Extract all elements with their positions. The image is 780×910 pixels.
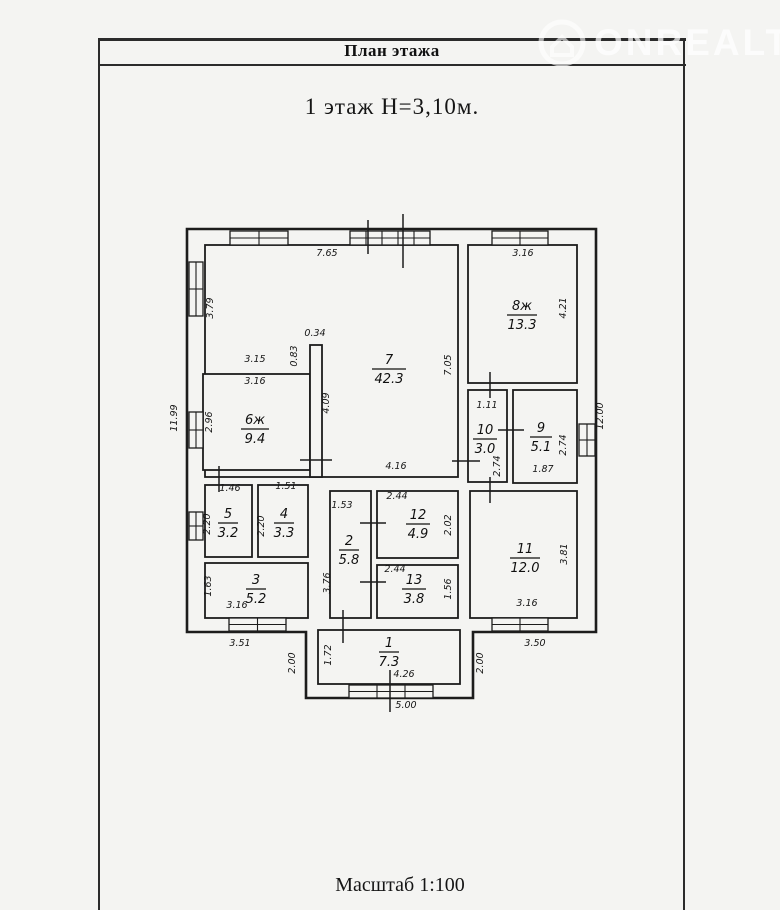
dimension-label: 2.20	[256, 515, 267, 536]
dimension-label: 3.50	[524, 638, 545, 649]
dimension-label: 5.00	[395, 700, 416, 711]
dimension-label: 1.72	[323, 644, 334, 665]
dimension-label: 3.76	[322, 572, 333, 593]
scale-label: Масштаб 1:100	[98, 874, 702, 897]
room-area: 3.3	[274, 526, 295, 541]
dimension-label: 0.83	[289, 345, 300, 366]
dimension-label: 3.16	[512, 248, 533, 259]
dimension-label: 2.44	[386, 491, 407, 502]
room-number: 10	[477, 423, 494, 438]
room-area: 9.4	[245, 432, 266, 447]
room-number: 3	[252, 573, 260, 588]
room-area: 3.0	[475, 442, 496, 457]
dimension-label: 2.02	[443, 514, 454, 535]
room-area: 4.9	[408, 527, 429, 542]
dimension-label: 2.00	[287, 652, 298, 673]
dimension-label: 2.74	[558, 434, 569, 455]
room-number: 2	[345, 534, 353, 549]
room-number: 12	[410, 508, 427, 523]
dimension-label: 11.99	[169, 404, 180, 431]
room-number: 9	[537, 421, 545, 436]
floor-plan-drawing: 7.653.163.7911.9912.003.150.340.837.054.…	[0, 0, 780, 910]
room-area: 3.2	[218, 526, 239, 541]
dimension-label: 1.11	[476, 400, 497, 411]
room-area: 7.3	[379, 655, 400, 670]
room-number: 7	[385, 353, 394, 368]
room-area: 5.8	[339, 553, 360, 568]
dimension-label: 3.15	[244, 354, 265, 365]
room-number: 4	[280, 507, 288, 522]
room-area: 3.8	[404, 592, 425, 607]
dimension-label: 1.51	[275, 481, 296, 492]
floor-plan-page: План этажа ONREALT 1 этаж Н=3,10м. 7.653…	[0, 0, 780, 910]
dimension-label: 1.56	[443, 578, 454, 599]
room-outline	[205, 563, 308, 618]
dimension-label: 3.16	[516, 598, 537, 609]
dimension-label: 12.00	[595, 402, 606, 429]
room-number: 1	[385, 636, 393, 651]
dimension-label: 1.46	[219, 483, 240, 494]
room-number: 5	[224, 507, 232, 522]
dimension-label: 2.20	[202, 513, 213, 534]
dimension-label: 3.16	[244, 376, 265, 387]
dimension-label: 3.51	[229, 638, 250, 649]
dimension-label: 4.09	[321, 392, 332, 413]
room-number: 13	[406, 573, 423, 588]
dimension-label: 4.21	[558, 297, 569, 318]
dimension-label: 2.74	[492, 455, 503, 476]
dimension-label: 2.44	[384, 564, 405, 575]
dimension-label: 4.16	[385, 461, 406, 472]
dimension-label: 3.16	[226, 600, 247, 611]
dimension-label: 2.00	[475, 652, 486, 673]
dimension-label: 4.26	[393, 669, 414, 680]
room-area: 42.3	[375, 372, 404, 387]
dimension-label: 3.81	[559, 543, 570, 564]
dimension-label: 7.65	[316, 248, 337, 259]
room-area: 5.2	[246, 592, 267, 607]
room-area: 12.0	[511, 561, 540, 576]
dimension-label: 1.53	[331, 500, 352, 511]
dimension-label: 0.34	[304, 328, 325, 339]
room-number: 6ж	[245, 413, 265, 428]
dimension-label: 1.63	[203, 575, 214, 596]
dimension-label: 7.05	[443, 354, 454, 375]
room-number: 8ж	[512, 299, 532, 314]
dimension-label: 3.79	[205, 297, 216, 318]
dimension-label: 1.87	[532, 464, 553, 475]
room-area: 5.1	[531, 440, 552, 455]
room-number: 11	[517, 542, 534, 557]
room-area: 13.3	[508, 318, 537, 333]
dimension-label: 2.96	[204, 411, 215, 432]
